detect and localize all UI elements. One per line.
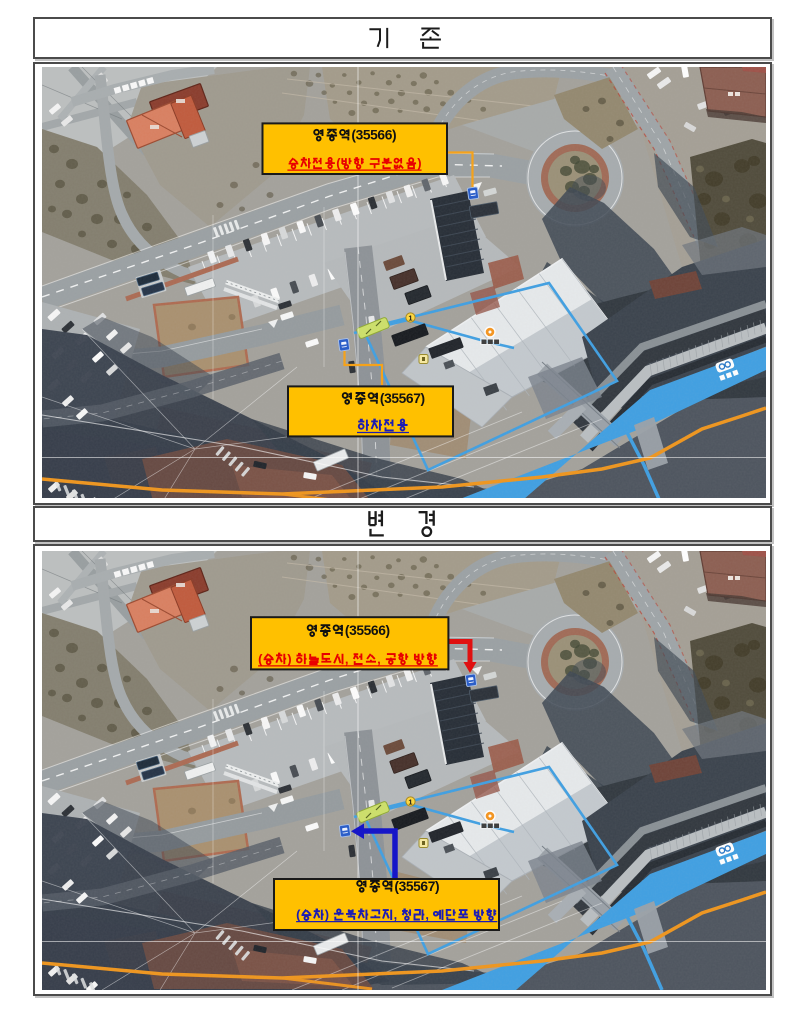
svg-text:): ) [287, 652, 291, 667]
svg-text:(: ( [296, 907, 301, 922]
svg-text:,: , [425, 907, 429, 922]
svg-text:): ) [417, 156, 421, 171]
svg-text:,: , [394, 907, 398, 922]
svg-text:(: ( [336, 156, 341, 171]
svg-text:,: , [345, 652, 349, 667]
svg-text:(: ( [258, 652, 263, 667]
svg-text:,: , [377, 652, 381, 667]
svg-text:): ) [325, 907, 329, 922]
svg-text:(35566): (35566) [351, 128, 396, 143]
svg-text:(35567): (35567) [380, 391, 425, 406]
svg-text:(35567): (35567) [394, 879, 439, 894]
svg-text:(35566): (35566) [345, 623, 390, 638]
